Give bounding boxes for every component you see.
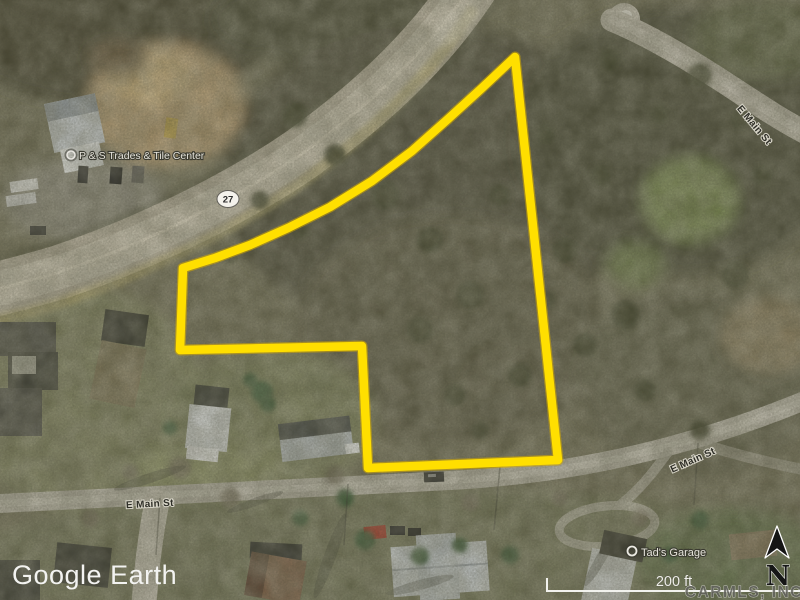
business-poi-label[interactable]: P & S Trades & Tile Center <box>79 150 205 162</box>
google-earth-logo: Google Earth <box>12 560 177 590</box>
watermark: CARMLS, INC <box>685 584 800 600</box>
highway-shield-number: 27 <box>223 195 234 206</box>
highway-27-shield: 27 <box>217 191 239 208</box>
google-earth-viewport[interactable]: 27 P & S Trades & Tile Center Tad's Gara… <box>0 0 800 600</box>
business-poi[interactable]: P & S Trades & Tile Center <box>66 150 205 162</box>
texture-fine <box>0 0 800 600</box>
satellite-canvas: 27 P & S Trades & Tile Center Tad's Gara… <box>0 0 800 600</box>
garage-poi-label[interactable]: Tad's Garage <box>641 547 706 559</box>
